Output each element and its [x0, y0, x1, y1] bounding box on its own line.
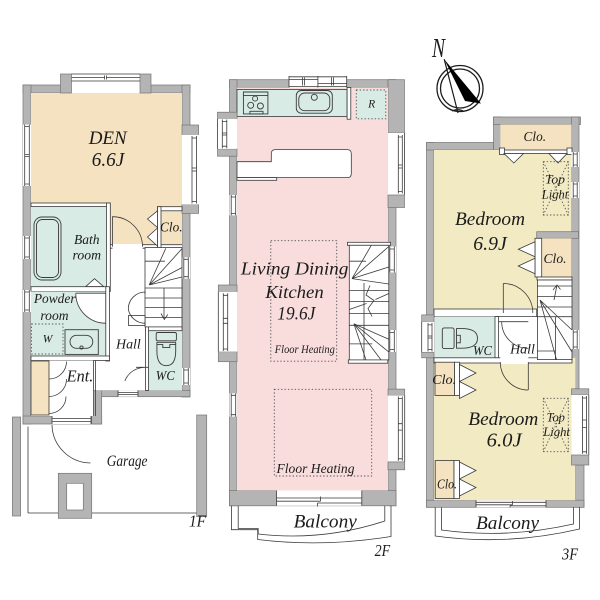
svg-text:Ent.: Ent. — [66, 367, 93, 386]
svg-text:room: room — [73, 248, 102, 263]
svg-text:Clo.: Clo. — [544, 251, 567, 266]
svg-text:Floor Heating: Floor Heating — [275, 461, 354, 476]
svg-text:DEN: DEN — [88, 128, 128, 149]
svg-text:3F: 3F — [561, 545, 579, 564]
svg-text:Hall: Hall — [509, 342, 535, 357]
svg-text:WC: WC — [473, 343, 493, 358]
svg-text:Garage: Garage — [107, 453, 148, 470]
svg-text:Balcony: Balcony — [294, 512, 358, 533]
svg-text:WC: WC — [156, 368, 176, 383]
svg-text:Clo.: Clo. — [437, 477, 457, 492]
svg-text:N: N — [431, 33, 446, 63]
svg-text:1F: 1F — [189, 512, 207, 531]
svg-text:Top: Top — [545, 173, 565, 187]
svg-text:6.6J: 6.6J — [92, 150, 126, 171]
svg-text:Hall: Hall — [115, 336, 141, 351]
svg-text:Bedroom: Bedroom — [455, 209, 525, 230]
svg-text:Kitchen: Kitchen — [264, 282, 323, 302]
svg-text:R: R — [367, 99, 375, 111]
svg-text:6.9J: 6.9J — [473, 234, 508, 255]
svg-text:Living Dining: Living Dining — [240, 259, 349, 279]
svg-text:Powder: Powder — [33, 291, 76, 306]
svg-text:Bedroom: Bedroom — [468, 409, 538, 430]
svg-text:Clo.: Clo. — [160, 220, 183, 235]
svg-text:Balcony: Balcony — [476, 513, 540, 534]
svg-text:2F: 2F — [375, 541, 391, 560]
svg-text:6.0J: 6.0J — [487, 431, 523, 452]
svg-text:Clo.: Clo. — [524, 129, 547, 144]
svg-text:W: W — [43, 334, 54, 346]
svg-text:Floor Heating: Floor Heating — [274, 342, 335, 356]
svg-text:19.6J: 19.6J — [277, 303, 316, 324]
svg-text:Light: Light — [542, 425, 570, 439]
svg-text:Bath: Bath — [74, 232, 100, 247]
svg-text:Light: Light — [541, 188, 569, 202]
svg-text:room: room — [40, 308, 68, 323]
svg-text:Clo.: Clo. — [432, 372, 456, 387]
svg-text:Top: Top — [547, 411, 565, 425]
